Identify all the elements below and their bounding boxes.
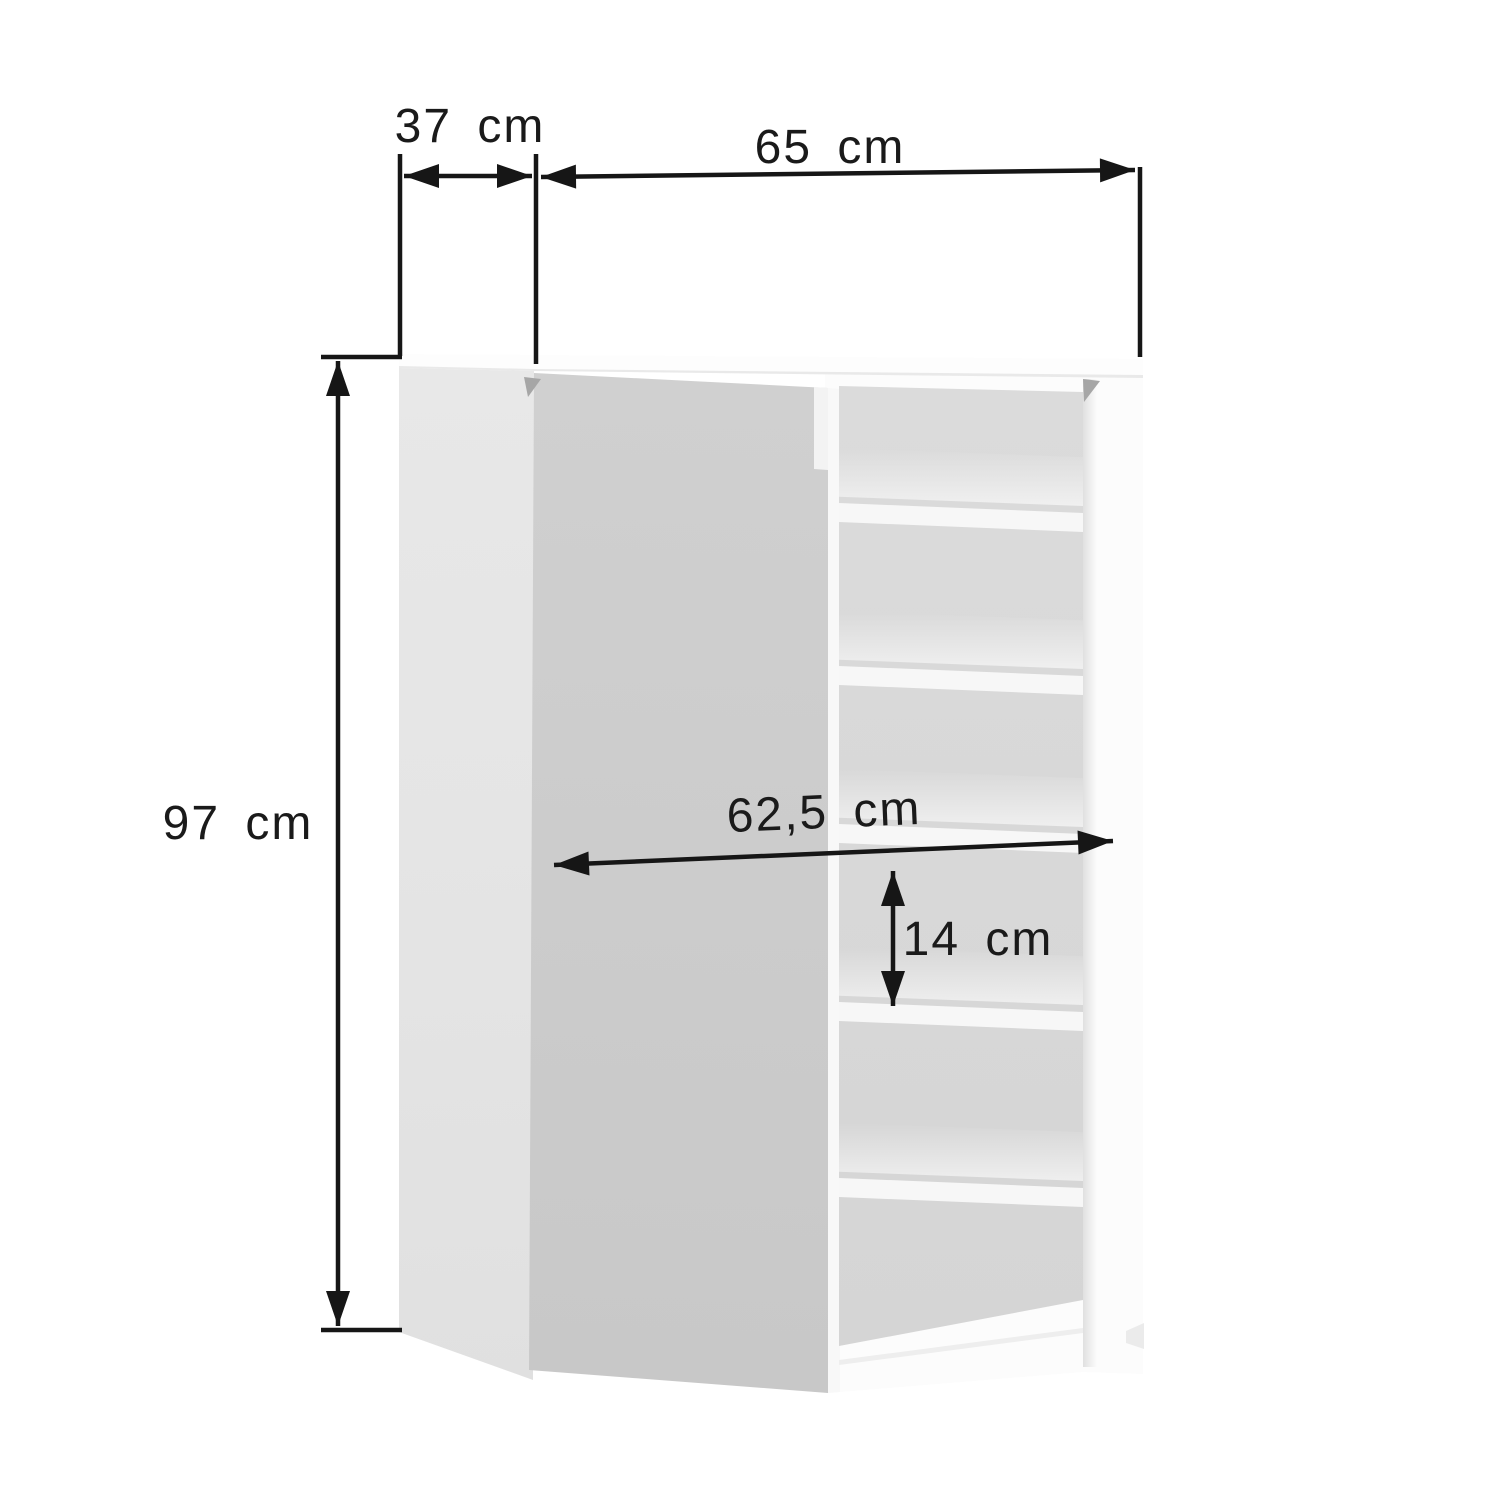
dimension-label-compartment-height: 14 cm [903, 916, 1054, 964]
dimension-diagram: 37 cm 65 cm 97 cm 62,5 cm 14 cm [0, 0, 1500, 1500]
dimension-label-height: 97 cm [163, 800, 314, 848]
dim-height-97 [321, 357, 402, 1330]
dimension-lines [0, 0, 1500, 1500]
dimension-label-front-width: 65 cm [755, 124, 906, 172]
dim-width-65 [541, 167, 1140, 357]
dimension-label-inner-width: 62,5 cm [726, 785, 923, 841]
dim-depth-37 [400, 154, 536, 364]
dim-inner-width-625 [554, 841, 1113, 865]
dimension-label-side-depth: 37 cm [395, 103, 546, 151]
